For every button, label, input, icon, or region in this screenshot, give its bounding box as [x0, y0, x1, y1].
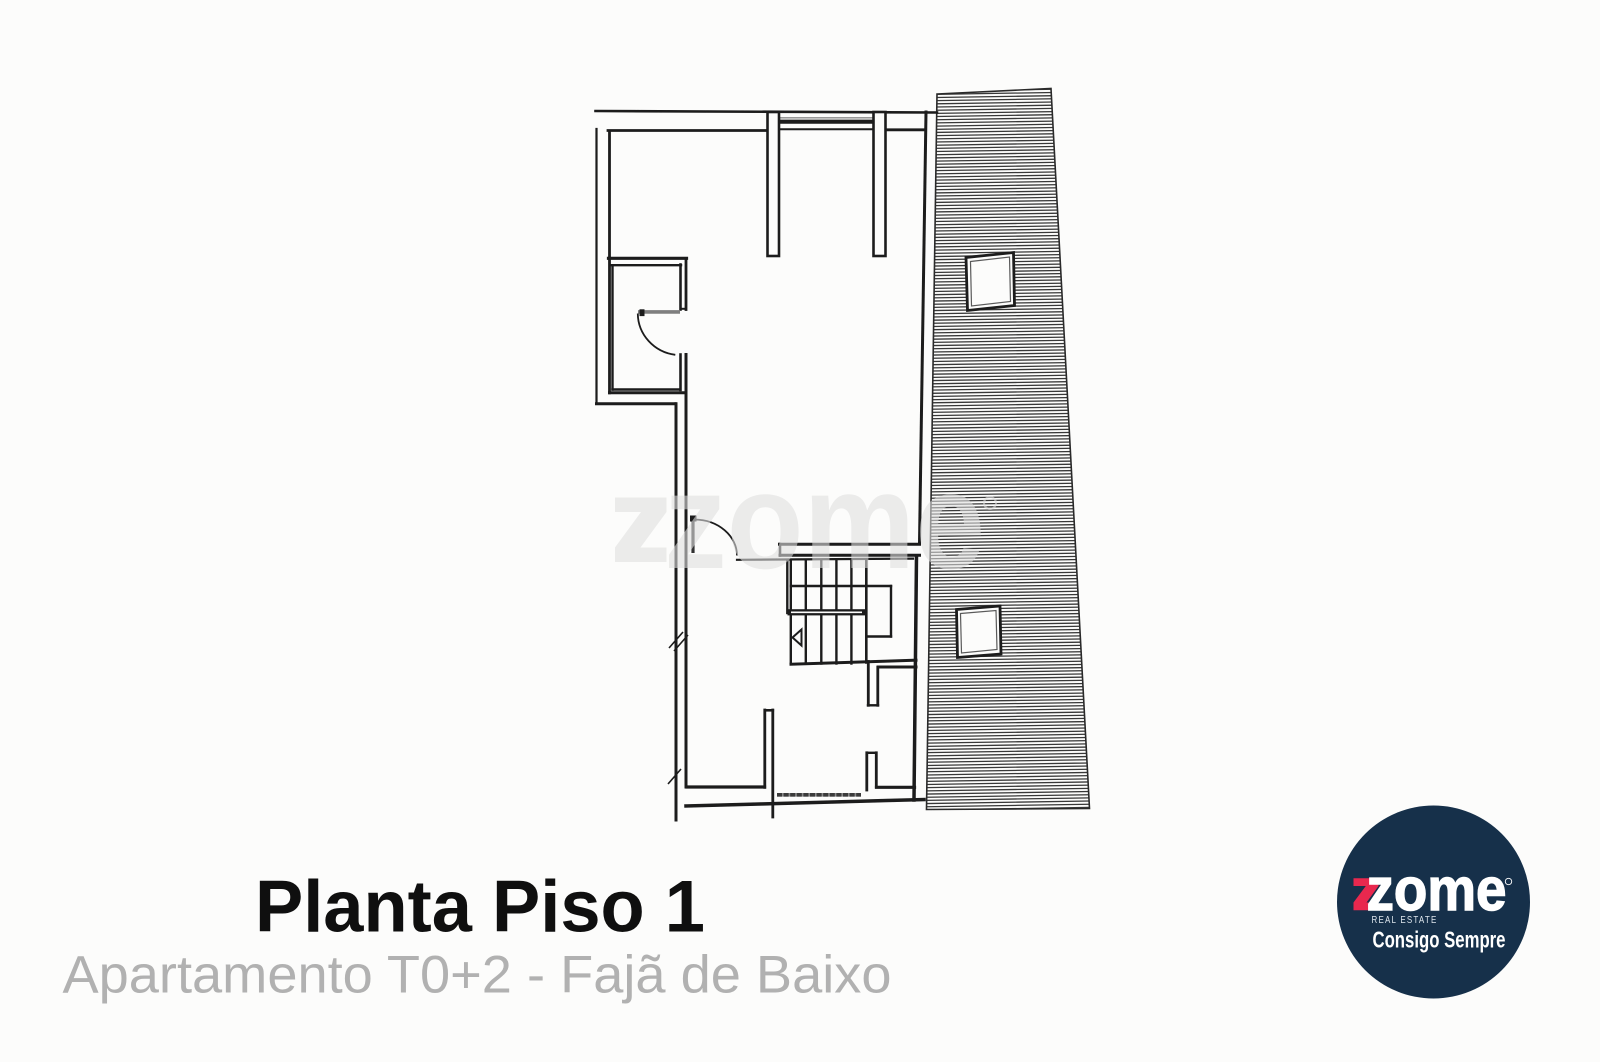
svg-text:Planta Piso 1: Planta Piso 1 [255, 867, 705, 948]
svg-text:Apartamento T0+2 - Fajã de Bai: Apartamento T0+2 - Fajã de Baixo [63, 946, 892, 1005]
svg-text:REAL ESTATE: REAL ESTATE [1372, 914, 1438, 926]
svg-text:Consigo Sempre: Consigo Sempre [1373, 927, 1506, 953]
svg-text:zome: zome [664, 445, 985, 598]
